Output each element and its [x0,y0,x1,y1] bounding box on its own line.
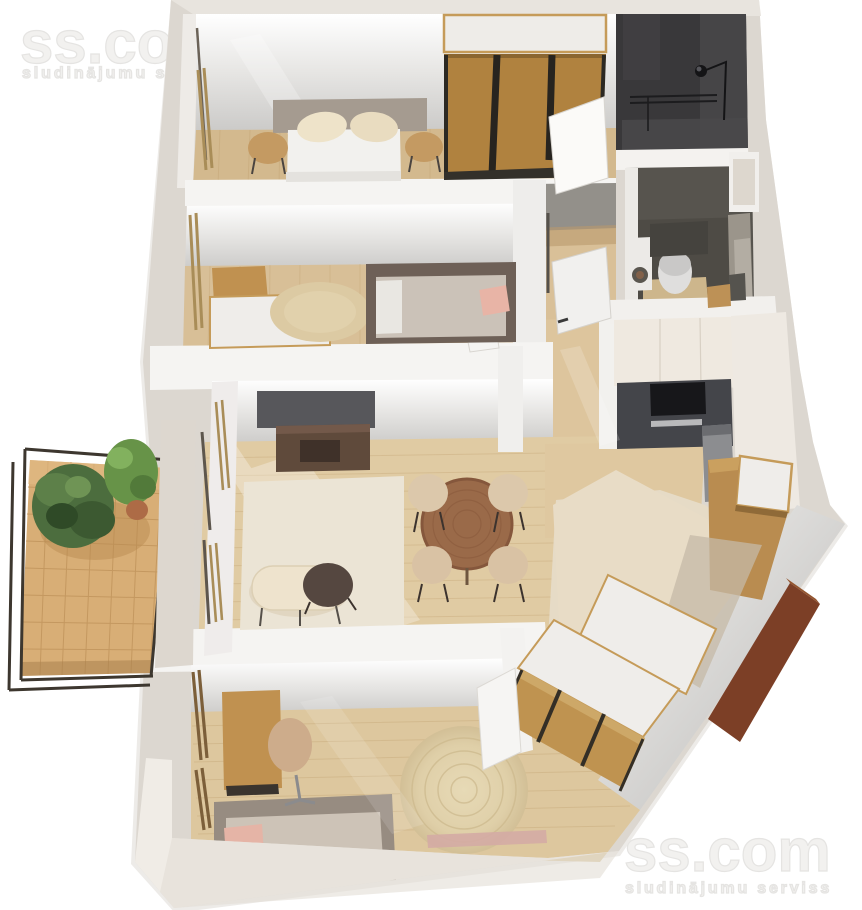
svg-text:ss.com: ss.com [624,817,831,884]
svg-text:sludinājumu serviss: sludinājumu serviss [625,880,832,897]
